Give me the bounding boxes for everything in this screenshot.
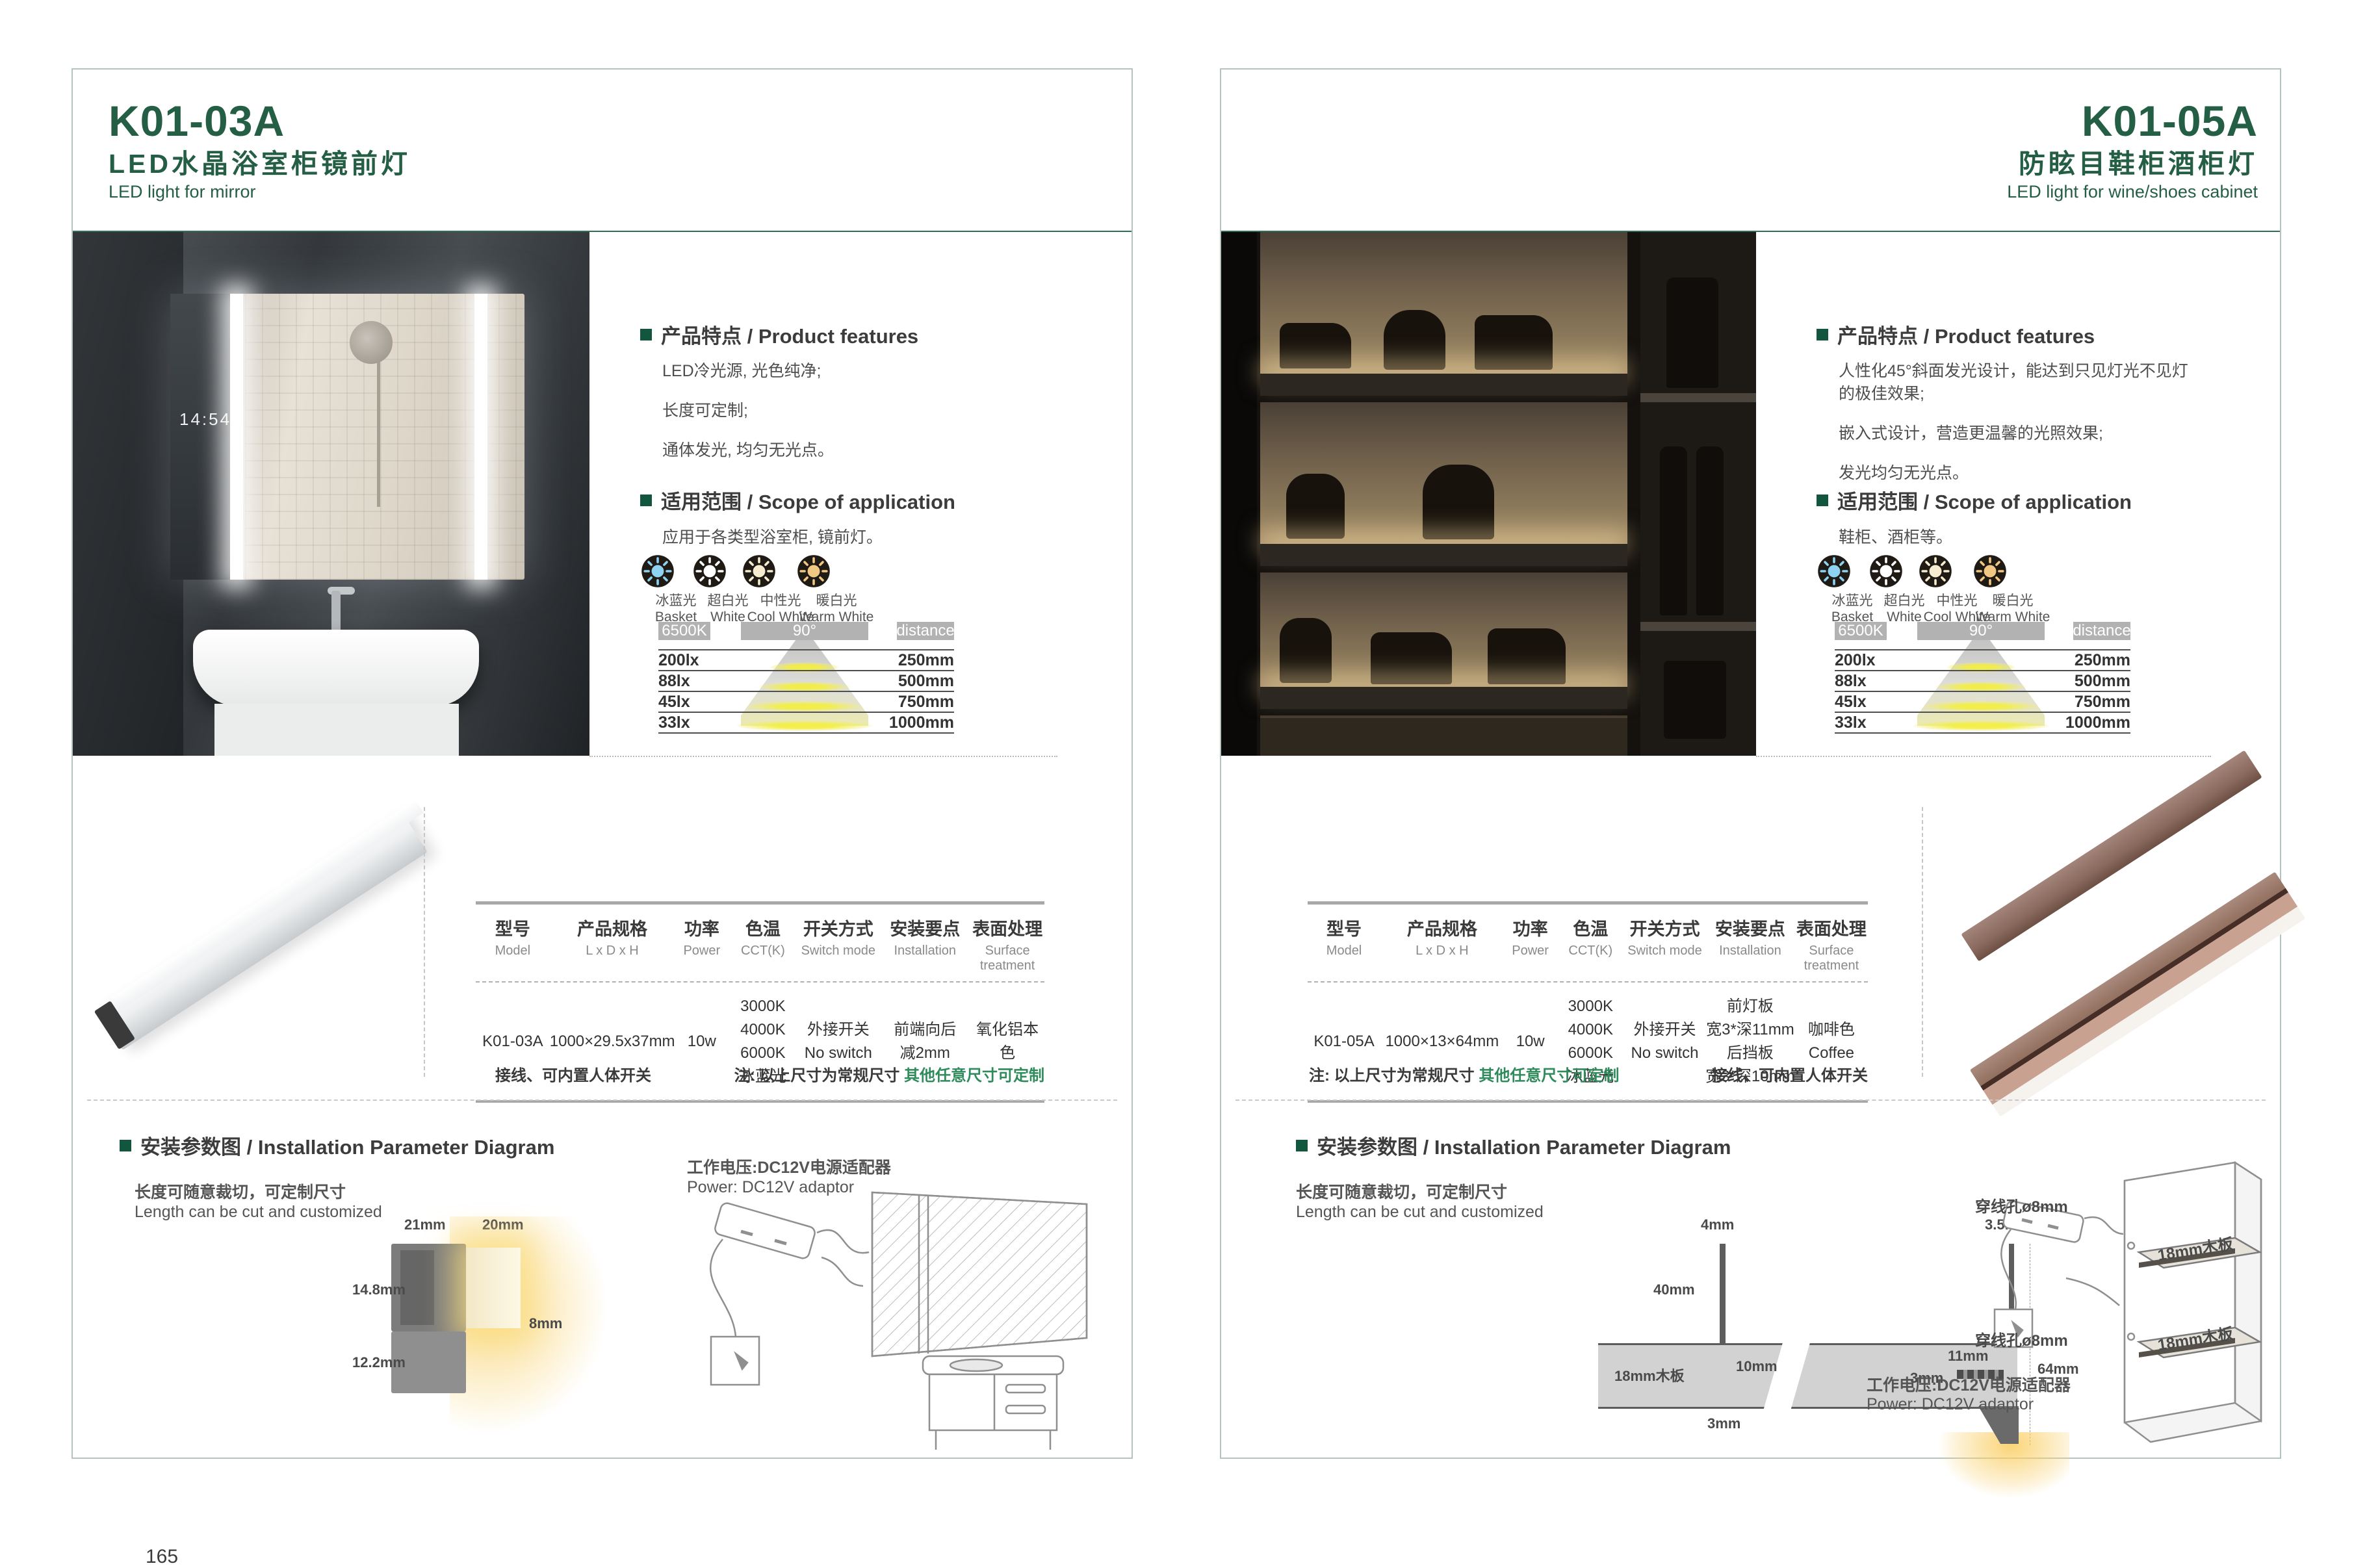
installation-illustration: 工作电压:DC12V电源适配器 Power: DC12V adaptor (671, 1142, 1126, 1454)
cct-badge: 6500K (1835, 622, 1887, 640)
green-square-icon (640, 329, 652, 341)
photometry-row: 33lx1000mm (658, 713, 954, 734)
header-cn: 色温 (729, 915, 797, 940)
switch-line: No switch (797, 1042, 879, 1065)
header-en: L x D x H (1380, 944, 1504, 958)
install-line: 后挡板 (1705, 1042, 1795, 1065)
dim-slot-width: 3mm (1707, 1415, 1740, 1432)
bathroom-wall-shadow (73, 232, 183, 756)
cct-line: 3000K (1557, 995, 1624, 1018)
dim-top-width: 21mm (404, 1216, 446, 1233)
features-heading-label: 产品特点 / Product features (1837, 320, 2095, 349)
header-cn: 产品规格 (550, 915, 675, 940)
sun-icon (796, 554, 831, 589)
header-en: Power (1504, 944, 1557, 958)
beam-angle-badge: 90° (741, 622, 868, 640)
header-cn: 功率 (675, 915, 729, 940)
scope-heading: 适用范围 / Scope of application (640, 485, 955, 515)
product-render-aluminium-profile (89, 801, 394, 1080)
photometry-row: 200lx250mm (658, 650, 954, 671)
cabinet-right-column (1640, 232, 1756, 756)
photometry-row: 200lx250mm (1835, 650, 2130, 671)
cut-note-cn: 长度可随意裁切，可定制尺寸 (1296, 1179, 1507, 1203)
scope-heading-label: 适用范围 / Scope of application (1837, 485, 2132, 515)
header-installation: 安装要点Installation (1705, 915, 1795, 973)
green-square-icon (640, 495, 652, 506)
product-code: K01-03A (109, 99, 411, 142)
switch-line: No switch (1624, 1042, 1705, 1065)
photometry-row: 33lx1000mm (1835, 713, 2130, 734)
scope-text: 应用于各类型浴室柜, 镜前灯。 (662, 524, 883, 548)
feature-item: LED冷光源, 光色纯净; (662, 360, 1065, 383)
sun-icon (640, 554, 675, 589)
surface-line: 咖啡色 (1795, 1018, 1868, 1042)
shower-head-reflection (350, 321, 393, 364)
lux-value: 200lx (658, 651, 699, 670)
led-mirror: 14:54 (170, 294, 524, 580)
mirror-led-strip-right (474, 294, 487, 580)
wiring-note: 接线、可内置人体开关 (1308, 1062, 1868, 1085)
light-label-cn: 暖白光 (1972, 590, 2053, 610)
cell-power: 10w (1504, 1030, 1557, 1053)
photometry-rows: 200lx250mm 88lx500mm 45lx750mm 33lx1000m… (658, 649, 954, 734)
shoe-silhouette (1384, 310, 1445, 370)
switch-line: 外接开关 (1624, 1018, 1705, 1042)
header-power: 功率Power (675, 915, 729, 973)
product-code: K01-05A (2007, 99, 2258, 142)
profile-diffuser (1993, 906, 2306, 1116)
header-en: Switch mode (797, 944, 879, 958)
green-square-icon (1817, 329, 1828, 341)
header-en: CCT(K) (1557, 944, 1624, 958)
sun-icon (742, 554, 777, 589)
light-panel (466, 1248, 521, 1328)
header-en: L x D x H (550, 944, 675, 958)
mirror-clock: 14:54 (179, 409, 231, 430)
product-render-coffee-profile (1936, 801, 2271, 1080)
feature-item: 长度可定制; (662, 400, 1065, 422)
wire-hole-label-top: 穿线孔ø8mm (1975, 1194, 2068, 1216)
shoe-silhouette (1280, 323, 1351, 368)
header-size: 产品规格L x D x H (550, 915, 675, 973)
header-cn: 产品规格 (1380, 915, 1504, 940)
header-cn: 表面处理 (970, 915, 1044, 940)
page-title: K01-03A LED水晶浴室柜镜前灯 LED light for mirror (109, 99, 411, 202)
cell-installation: 前端向后 减2mm (879, 1018, 970, 1065)
install-heading: 安装参数图 / Installation Parameter Diagram (120, 1131, 554, 1160)
spec-table-header: 型号Model 产品规格L x D x H 功率Power 色温CCT(K) 开… (1308, 905, 1868, 983)
cct-line: 4000K (1557, 1018, 1624, 1042)
cabinet-lit-column (1260, 232, 1627, 756)
header-en: Model (476, 944, 550, 958)
feature-item: 通体发光, 均匀无光点。 (662, 439, 1065, 462)
surface-line: Coffee (1795, 1042, 1868, 1065)
header-surface: 表面处理Surface treatment (1795, 915, 1868, 973)
lux-value: 88lx (658, 672, 690, 691)
product-photo-bathroom: 14:54 (73, 232, 589, 756)
lux-value: 33lx (1835, 713, 1867, 732)
lux-value: 45lx (658, 693, 690, 712)
features-list: LED冷光源, 光色纯净; 长度可定制; 通体发光, 均匀无光点。 (662, 360, 1065, 479)
photometry-row: 45lx750mm (658, 692, 954, 713)
profile-bar (95, 810, 428, 1050)
cut-note-en: Length can be cut and customized (135, 1203, 382, 1222)
header-cn: 开关方式 (1624, 915, 1705, 940)
catalog-page-left: K01-03A LED水晶浴室柜镜前灯 LED light for mirror… (71, 68, 1133, 1459)
photometry-table: 6500K 90° distance 200lx250mm 88lx500mm … (658, 622, 954, 732)
header-cn: 安装要点 (1705, 915, 1795, 940)
distance-badge: distance (2073, 622, 2130, 640)
photometry-table: 6500K 90° distance 200lx250mm 88lx500mm … (1835, 622, 2130, 732)
surface-line: 氧化铝本色 (970, 1018, 1044, 1065)
header-en: Installation (1705, 944, 1795, 958)
storage-boxes (1260, 715, 1627, 756)
header-en: Surface treatment (1795, 944, 1868, 973)
dim-light-width: 20mm (482, 1216, 524, 1233)
install-line: 前端向后 (879, 1018, 970, 1042)
boot-silhouette (1666, 277, 1718, 388)
page-title: K01-05A 防眩目鞋柜酒柜灯 LED light for wine/shoe… (2007, 99, 2258, 202)
cell-size: 1000×13×64mm (1380, 1030, 1504, 1053)
header-en: Installation (879, 944, 970, 958)
boot-silhouette (1696, 446, 1724, 615)
product-title-en: LED light for wine/shoes cabinet (2007, 182, 2258, 202)
header-switch: 开关方式Switch mode (797, 915, 879, 973)
distance-value: 250mm (898, 651, 954, 670)
install-heading: 安装参数图 / Installation Parameter Diagram (1296, 1131, 1731, 1160)
wire-hole-label-bottom: 穿线孔ø8mm (1975, 1328, 2068, 1350)
size-note-custom: 其他任意尺寸可定制 (904, 1067, 1044, 1085)
shoe-silhouette (1475, 315, 1553, 370)
dim-light-height: 8mm (529, 1315, 562, 1332)
header-cn: 开关方式 (797, 915, 879, 940)
header-cn: 功率 (1504, 915, 1557, 940)
photo-bottom-dotline (1756, 756, 2211, 757)
product-photo-shoe-cabinet (1221, 232, 1756, 756)
feature-item: 嵌入式设计，营造更温馨的光照效果; (1839, 422, 2203, 445)
photometry-row: 88lx500mm (1835, 671, 2130, 692)
install-heading-label: 安装参数图 / Installation Parameter Diagram (140, 1131, 554, 1160)
header-en: Switch mode (1624, 944, 1705, 958)
profile-diffuser (110, 800, 424, 1011)
photometry-row: 88lx500mm (658, 671, 954, 692)
cut-note-en: Length can be cut and customized (1296, 1203, 1544, 1222)
vertical-dashed-divider (1922, 807, 1923, 1077)
shoe-silhouette (1488, 628, 1566, 684)
header-en: Power (675, 944, 729, 958)
distance-value: 750mm (898, 693, 954, 712)
distance-value: 500mm (2075, 672, 2130, 691)
shoe-silhouette (1371, 632, 1452, 684)
distance-badge: distance (897, 622, 954, 640)
wash-basin (193, 630, 479, 706)
light-label-cn: 暖白光 (796, 590, 877, 610)
cct-line: 3000K (729, 995, 797, 1018)
header-installation: 安装要点Installation (879, 915, 970, 973)
profile-cross-section-diagram: 21mm 20mm 14.8mm 8mm 12.2mm (352, 1216, 599, 1444)
dim-panel-thickness: 4mm (1701, 1216, 1734, 1233)
boot-silhouette (1664, 661, 1726, 739)
features-list: 人性化45°斜面发光设计，能达到只见灯光不见灯的极佳效果; 嵌入式设计，营造更温… (1839, 360, 2203, 502)
cabinet-background (1221, 232, 1756, 756)
header-cct: 色温CCT(K) (729, 915, 797, 973)
page-number: 165 (146, 1546, 178, 1568)
cell-size: 1000×29.5x37mm (550, 1030, 675, 1053)
profile-endcap (94, 1001, 135, 1049)
photo-bottom-dotline (589, 756, 1057, 757)
faucet (331, 591, 341, 634)
lux-value: 33lx (658, 713, 690, 732)
beam-angle-badge: 90° (1917, 622, 2045, 640)
cell-surface: 氧化铝本色 (970, 1018, 1044, 1065)
cell-model: K01-05A (1308, 1030, 1380, 1053)
cct-line: 4000K (729, 1018, 797, 1042)
size-note-prefix: 注: 以上尺寸为常规尺寸 (734, 1067, 904, 1085)
lux-value: 45lx (1835, 693, 1867, 712)
install-line: 宽3*深11mm (1705, 1018, 1795, 1042)
header-cn: 型号 (476, 915, 550, 940)
photometry-row: 45lx750mm (1835, 692, 2130, 713)
install-heading-label: 安装参数图 / Installation Parameter Diagram (1317, 1131, 1731, 1160)
light-icon-warm-white: 暖白光 Warm White (1972, 554, 2053, 625)
features-heading: 产品特点 / Product features (640, 320, 918, 349)
shoe-silhouette (1423, 465, 1494, 539)
shelf-cell (1260, 572, 1627, 709)
sun-icon (1972, 554, 2008, 589)
green-square-icon (120, 1140, 131, 1151)
sun-icon (1918, 554, 1953, 589)
shelf-board (1260, 687, 1627, 709)
cct-line: 6000K (1557, 1042, 1624, 1065)
power-note-en: Power: DC12V adaptor (1867, 1395, 2034, 1414)
header-power: 功率Power (1504, 915, 1557, 973)
product-title-en: LED light for mirror (109, 182, 411, 202)
cell-surface: 咖啡色 Coffee (1795, 1018, 1868, 1065)
section-dashed-divider (87, 1099, 1117, 1101)
light-icon-warm-white: 暖白光 Warm White (796, 554, 877, 625)
mirror-reflection-dark (170, 294, 232, 580)
header-en: Model (1308, 944, 1380, 958)
power-note-cn: 工作电压:DC12V电源适配器 (687, 1155, 891, 1178)
power-note-cn: 工作电压:DC12V电源适配器 (1867, 1372, 2071, 1396)
dim-board: 18mm木板 (1614, 1365, 1685, 1385)
vanity-cabinet (214, 704, 459, 756)
mirror-led-strip-left (230, 294, 243, 580)
sun-icon (692, 554, 727, 589)
header-cn: 色温 (1557, 915, 1624, 940)
header-model: 型号Model (476, 915, 550, 973)
header-cn: 表面处理 (1795, 915, 1868, 940)
shelf-edge (1640, 622, 1756, 631)
switch-line: 外接开关 (797, 1018, 879, 1042)
shelf-board (1260, 544, 1627, 566)
header-cn: 安装要点 (879, 915, 970, 940)
divider-panel (1720, 1244, 1726, 1359)
lux-value: 200lx (1835, 651, 1876, 670)
shelf-cell (1260, 232, 1627, 396)
distance-value: 500mm (898, 672, 954, 691)
distance-value: 1000mm (889, 713, 954, 732)
shoe-silhouette (1280, 618, 1332, 683)
size-note: 注: 以上尺寸为常规尺寸 其他任意尺寸可定制 (476, 1062, 1044, 1085)
scope-heading: 适用范围 / Scope of application (1817, 485, 2132, 515)
cct-line: 6000K (729, 1042, 797, 1065)
catalog-page-right: K01-05A 防眩目鞋柜酒柜灯 LED light for wine/shoe… (1220, 68, 2281, 1459)
product-title-cn: 防眩目鞋柜酒柜灯 (2007, 149, 2258, 179)
cabinet-side-panel (1221, 232, 1257, 756)
feature-item: 人性化45°斜面发光设计，能达到只见灯光不见灯的极佳效果; (1839, 360, 2203, 405)
features-heading: 产品特点 / Product features (1817, 320, 2095, 349)
lux-value: 88lx (1835, 672, 1867, 691)
shelf-board (1260, 374, 1627, 396)
shelf-cell (1260, 402, 1627, 566)
header-cn: 型号 (1308, 915, 1380, 940)
shoe-silhouette (1286, 474, 1345, 539)
distance-value: 1000mm (2065, 713, 2130, 732)
header-size: 产品规格L x D x H (1380, 915, 1504, 973)
header-en: CCT(K) (729, 944, 797, 958)
header-switch: 开关方式Switch mode (1624, 915, 1705, 973)
shelf-edge (1640, 393, 1756, 402)
photometry-rows: 200lx250mm 88lx500mm 45lx750mm 33lx1000m… (1835, 649, 2130, 734)
header-model: 型号Model (1308, 915, 1380, 973)
header-cct: 色温CCT(K) (1557, 915, 1624, 973)
green-square-icon (1817, 495, 1828, 506)
vertical-dashed-divider (424, 807, 425, 1077)
dim-body-height: 14.8mm (352, 1281, 406, 1298)
cell-switch: 外接开关 No switch (797, 1018, 879, 1065)
features-heading-label: 产品特点 / Product features (661, 320, 918, 349)
cell-switch: 外接开关 No switch (1624, 1018, 1705, 1065)
cell-model: K01-03A (476, 1030, 550, 1053)
header-surface: 表面处理Surface treatment (970, 915, 1044, 973)
scope-heading-label: 适用范围 / Scope of application (661, 485, 955, 515)
distance-value: 750mm (2075, 693, 2130, 712)
install-line: 减2mm (879, 1042, 970, 1065)
spec-table-header: 型号Model 产品规格L x D x H 功率Power 色温CCT(K) 开… (476, 905, 1044, 983)
header-en: Surface treatment (970, 944, 1044, 973)
dim-bracket-height: 12.2mm (352, 1354, 406, 1371)
sun-icon (1869, 554, 1904, 589)
cct-badge: 6500K (658, 622, 710, 640)
dim-panel-height: 40mm (1653, 1281, 1695, 1298)
feature-item: 发光均匀无光点。 (1839, 462, 2203, 485)
boot-silhouette (1660, 446, 1687, 615)
green-square-icon (1296, 1140, 1308, 1151)
cut-note-cn: 长度可随意裁切，可定制尺寸 (135, 1179, 346, 1203)
sun-icon (1817, 554, 1852, 589)
dim-slot-depth: 10mm (1736, 1358, 1778, 1375)
product-title-cn: LED水晶浴室柜镜前灯 (109, 149, 411, 179)
power-note-en: Power: DC12V adaptor (687, 1178, 854, 1197)
scope-text: 鞋柜、酒柜等。 (1839, 524, 1952, 548)
distance-value: 250mm (2075, 651, 2130, 670)
bracket-slot (448, 1466, 486, 1483)
cell-power: 10w (675, 1030, 729, 1053)
install-line: 前灯板 (1705, 995, 1795, 1018)
section-dashed-divider (1235, 1099, 2266, 1101)
